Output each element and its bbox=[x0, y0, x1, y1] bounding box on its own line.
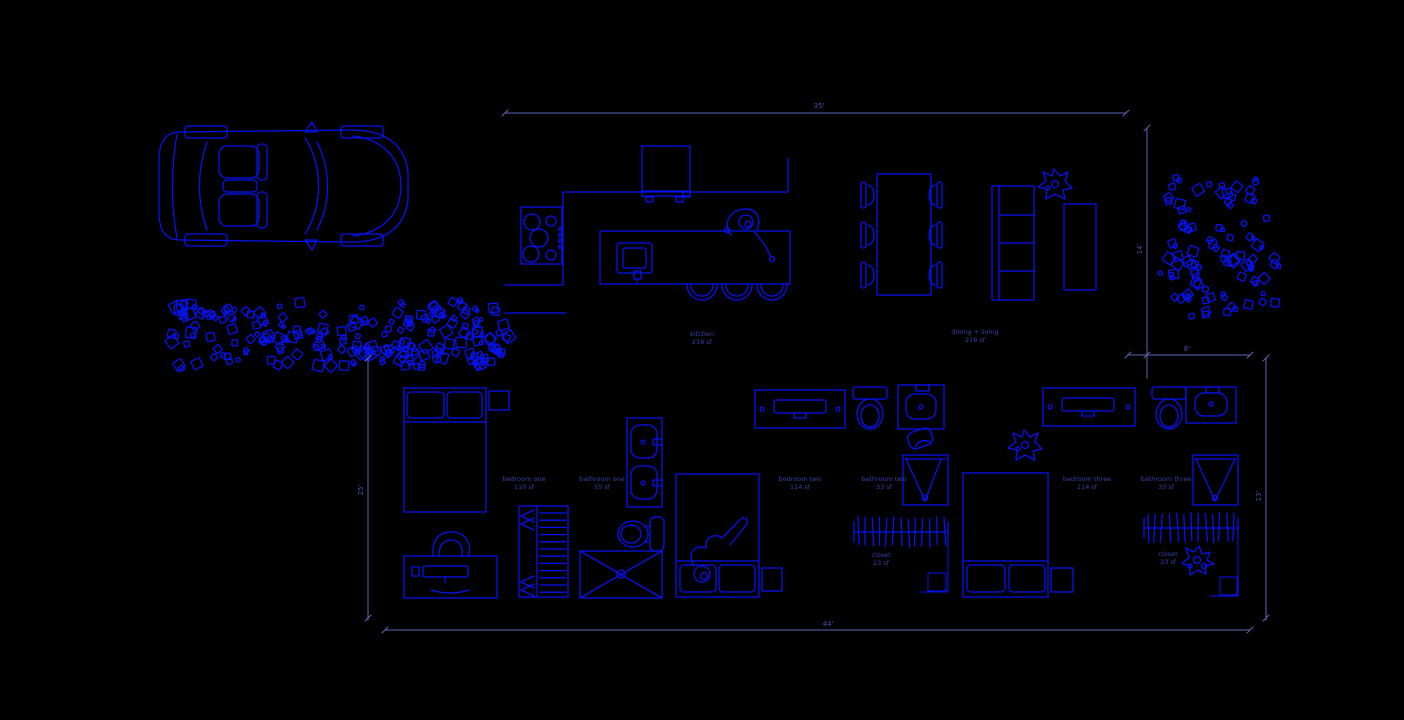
hanger-arrow bbox=[521, 576, 534, 588]
bed-three[interactable] bbox=[963, 473, 1048, 597]
dresser-with-tv[interactable] bbox=[755, 390, 845, 428]
room-label-dining-living: dining + living bbox=[951, 328, 998, 336]
room-labels[interactable]: kitchen 216 sf dining + living 216 sf be… bbox=[502, 328, 1191, 567]
dining-chair bbox=[861, 262, 866, 288]
hanger-arrow bbox=[521, 510, 534, 522]
car-top-view-block[interactable] bbox=[159, 122, 408, 250]
dim-text-top: 35' bbox=[814, 102, 825, 110]
desk-with-chair[interactable] bbox=[404, 532, 497, 598]
nightstand[interactable] bbox=[1051, 568, 1073, 592]
toilet-one[interactable] bbox=[618, 517, 664, 551]
room-label-bathroom-two: bathroom two bbox=[861, 475, 907, 483]
bathroom-two-block[interactable] bbox=[853, 385, 948, 505]
car-trunk-line bbox=[173, 134, 178, 238]
room-label-bathroom-one: bathroom one bbox=[579, 475, 625, 483]
car-hood-line bbox=[353, 136, 401, 236]
dining-chair bbox=[937, 262, 942, 288]
shrub-bed-cluster[interactable] bbox=[1158, 175, 1281, 319]
room-label-closet-b: closet bbox=[1158, 550, 1178, 558]
potted-plant-bedroom[interactable] bbox=[1008, 430, 1042, 460]
hanger-arrow bbox=[521, 584, 534, 596]
bar-stools[interactable] bbox=[687, 285, 787, 300]
monitor bbox=[423, 566, 468, 577]
room-label-kitchen: kitchen bbox=[690, 330, 714, 338]
shrub-bed-row[interactable] bbox=[165, 297, 516, 372]
dining-chair bbox=[861, 182, 866, 208]
toilet-three[interactable] bbox=[1152, 387, 1186, 429]
vanity-two[interactable] bbox=[898, 385, 944, 429]
room-label-bedroom-one: bedroom one bbox=[502, 475, 545, 483]
car-rear-window bbox=[200, 142, 208, 230]
bedroom-two-block[interactable] bbox=[676, 390, 948, 597]
room-area-bedroom-three: 114 sf bbox=[1077, 483, 1098, 491]
corner-shower-two[interactable] bbox=[903, 455, 948, 505]
kitchen-island[interactable] bbox=[600, 231, 790, 284]
room-label-bedroom-two: bedroom two bbox=[779, 475, 822, 483]
closet-rod-three[interactable] bbox=[1144, 513, 1238, 543]
dresser-with-tv-three[interactable] bbox=[1043, 388, 1135, 426]
potted-plant-living[interactable] bbox=[1038, 169, 1072, 199]
nightstand[interactable] bbox=[762, 568, 782, 591]
bedroom-one-block[interactable] bbox=[404, 388, 568, 598]
pillow bbox=[967, 565, 1005, 592]
room-area-kitchen: 216 sf bbox=[692, 338, 713, 346]
bed-two-with-person[interactable] bbox=[676, 474, 759, 597]
nightstand[interactable] bbox=[489, 391, 509, 410]
stool[interactable] bbox=[906, 426, 934, 450]
pillow bbox=[719, 565, 755, 592]
dim-text-bottom: 44' bbox=[823, 620, 834, 628]
room-label-bathroom-three: bathroom three bbox=[1141, 475, 1192, 483]
person-arm bbox=[722, 518, 747, 545]
cooktop[interactable] bbox=[521, 207, 562, 264]
car-seat bbox=[219, 194, 259, 226]
hanger-arrow bbox=[521, 518, 534, 530]
pillow bbox=[680, 565, 716, 592]
sink-basin bbox=[1195, 393, 1227, 416]
room-label-closet-a: closet bbox=[871, 551, 891, 559]
vanity-three[interactable] bbox=[1186, 387, 1236, 423]
room-area-bathroom-three: 33 sf bbox=[1158, 483, 1175, 491]
dining-chair bbox=[861, 222, 866, 248]
room-area-bathroom-two: 33 sf bbox=[876, 483, 893, 491]
car-console bbox=[223, 180, 257, 192]
car-seat bbox=[219, 146, 259, 178]
room-area-closet-b: 23 sf bbox=[1160, 558, 1177, 566]
room-label-bedroom-three: bedroom three bbox=[1063, 475, 1111, 483]
dim-text-right-upper: 14' bbox=[1136, 244, 1144, 255]
corner-shower-three[interactable] bbox=[1193, 455, 1238, 505]
car-wheel bbox=[341, 126, 383, 138]
bathroom-one-block[interactable] bbox=[580, 418, 664, 598]
room-area-bedroom-one: 110 sf bbox=[514, 483, 535, 491]
cad-canvas[interactable]: 35' 14' 8' 13' 25' 44' kitchen 216 sf di… bbox=[0, 0, 1404, 720]
pillow bbox=[447, 392, 482, 418]
car-wheel bbox=[341, 234, 383, 246]
faucet bbox=[916, 385, 929, 391]
refrigerator[interactable] bbox=[642, 146, 690, 202]
double-sink-vanity[interactable] bbox=[627, 418, 662, 507]
kitchen-block[interactable] bbox=[505, 146, 790, 313]
console-table[interactable] bbox=[1064, 204, 1096, 290]
faucet bbox=[634, 271, 641, 279]
room-area-bathroom-one: 55 sf bbox=[594, 483, 611, 491]
dim-text-offset: 8' bbox=[1184, 345, 1190, 353]
room-area-closet-a: 23 sf bbox=[873, 559, 890, 567]
closet-wall[interactable] bbox=[1210, 536, 1238, 596]
dining-living-block[interactable] bbox=[861, 169, 1096, 300]
dining-chair bbox=[937, 182, 942, 208]
hamper[interactable] bbox=[1220, 577, 1237, 595]
bedroom-three-block[interactable] bbox=[963, 388, 1238, 597]
pillow bbox=[407, 392, 444, 418]
hamper[interactable] bbox=[928, 573, 946, 591]
bed-one[interactable] bbox=[404, 388, 486, 512]
room-area-bedroom-two: 114 sf bbox=[790, 483, 811, 491]
pillow bbox=[1009, 565, 1045, 592]
tv bbox=[1062, 398, 1114, 411]
wardrobe-shelving[interactable] bbox=[519, 506, 568, 597]
dining-table[interactable] bbox=[861, 174, 942, 295]
car-windshield bbox=[305, 138, 319, 234]
toilet-two[interactable] bbox=[853, 387, 887, 429]
tv bbox=[774, 400, 826, 413]
car-body bbox=[159, 130, 408, 242]
desk-chair bbox=[433, 532, 470, 556]
sink-basin bbox=[906, 394, 936, 419]
potted-plant-closet[interactable] bbox=[1182, 546, 1214, 575]
faucet bbox=[1206, 387, 1219, 393]
shower-pan[interactable] bbox=[580, 551, 662, 598]
room-area-dining-living: 216 sf bbox=[965, 336, 986, 344]
dim-text-left: 25' bbox=[357, 485, 365, 496]
bookshelf[interactable] bbox=[992, 186, 1034, 300]
closet-rod-two[interactable] bbox=[854, 517, 948, 548]
closet-wall[interactable] bbox=[920, 536, 948, 592]
dimension-strings[interactable]: 35' 14' 8' 13' 25' 44' bbox=[357, 102, 1269, 633]
dining-chair bbox=[937, 222, 942, 248]
dim-text-right-lower: 13' bbox=[1255, 491, 1263, 502]
person-figure-kitchen[interactable] bbox=[725, 209, 775, 262]
